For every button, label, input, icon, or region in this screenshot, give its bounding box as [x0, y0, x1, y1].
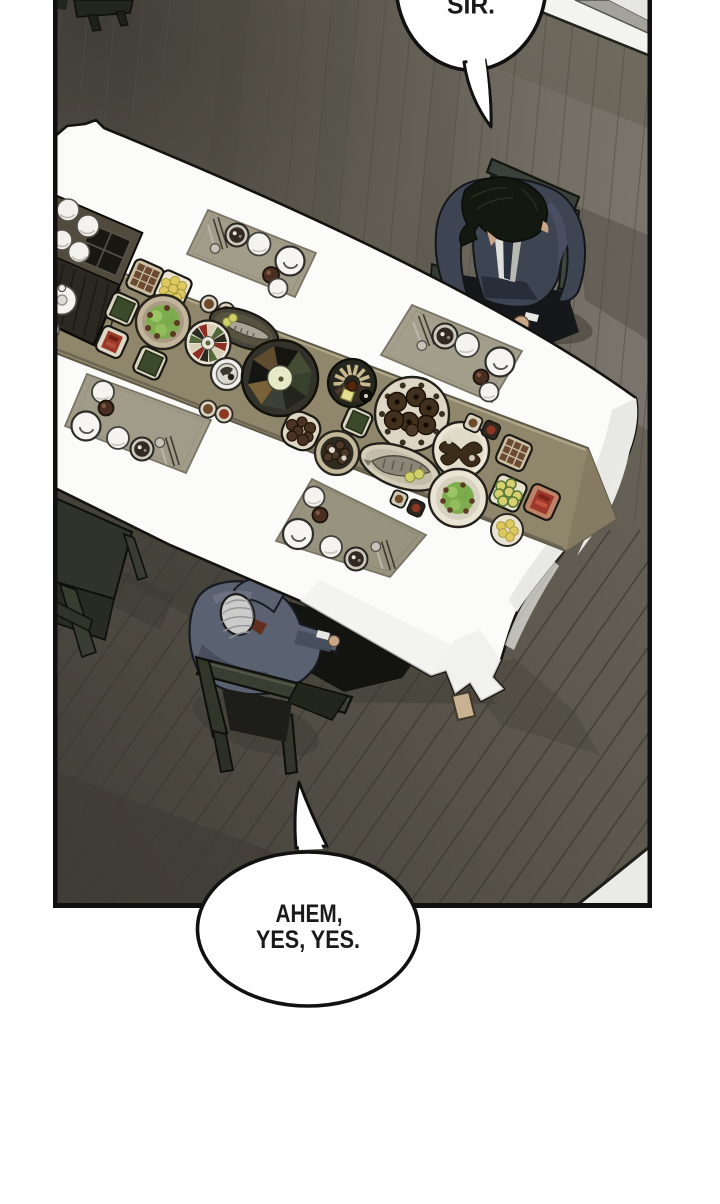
- svg-text:SIR.: SIR.: [447, 0, 495, 20]
- svg-text:YES, YES.: YES, YES.: [256, 926, 360, 954]
- svg-text:AHEM,: AHEM,: [276, 900, 343, 928]
